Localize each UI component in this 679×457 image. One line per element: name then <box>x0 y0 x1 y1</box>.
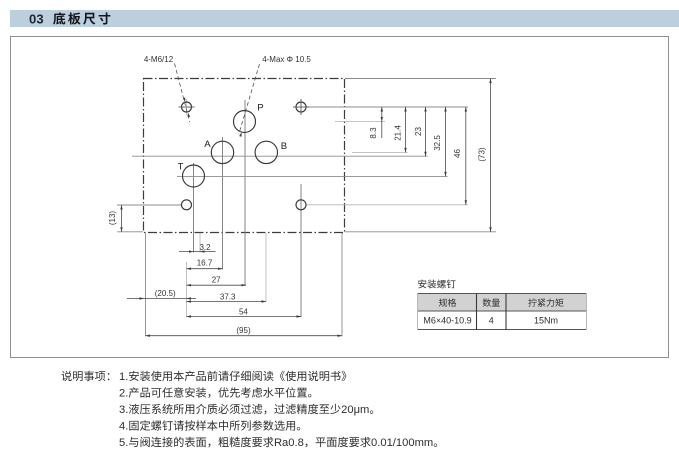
svg-text:15Nm: 15Nm <box>534 315 558 325</box>
svg-text:4-Max Φ 10.5: 4-Max Φ 10.5 <box>262 55 311 64</box>
svg-text:A: A <box>204 139 211 150</box>
svg-text:4.: 4. <box>119 421 128 433</box>
svg-text:(13): (13) <box>108 211 117 226</box>
svg-text:(95): (95) <box>236 326 251 335</box>
svg-text:3.: 3. <box>119 404 128 416</box>
svg-text:M6×40-10.9: M6×40-10.9 <box>423 315 471 325</box>
svg-text:23: 23 <box>414 127 423 136</box>
svg-text:4-M6/12: 4-M6/12 <box>144 55 174 64</box>
svg-text:37.3: 37.3 <box>220 292 236 301</box>
svg-text:27: 27 <box>212 275 221 284</box>
svg-text:Ra0.8: Ra0.8 <box>274 437 304 449</box>
svg-text:B: B <box>281 141 287 152</box>
svg-text:T: T <box>178 161 184 172</box>
svg-text:5.: 5. <box>119 437 128 449</box>
svg-text:16.7: 16.7 <box>197 259 213 268</box>
svg-text:0.01/100mm: 0.01/100mm <box>371 437 433 449</box>
svg-text:4: 4 <box>489 315 494 325</box>
svg-text:03: 03 <box>29 11 44 26</box>
svg-text:8.3: 8.3 <box>369 127 378 139</box>
svg-text:46: 46 <box>453 149 462 158</box>
svg-text:(73): (73) <box>478 147 487 162</box>
svg-text:1.: 1. <box>119 371 128 383</box>
svg-text:P: P <box>257 102 263 113</box>
svg-text:21.4: 21.4 <box>394 125 403 141</box>
svg-text:(20.5): (20.5) <box>155 289 176 298</box>
svg-text:2.: 2. <box>119 388 128 400</box>
svg-text:3.2: 3.2 <box>199 243 211 252</box>
svg-text:20μm: 20μm <box>341 404 369 416</box>
svg-text:32.5: 32.5 <box>433 135 442 151</box>
svg-text:54: 54 <box>239 307 248 316</box>
